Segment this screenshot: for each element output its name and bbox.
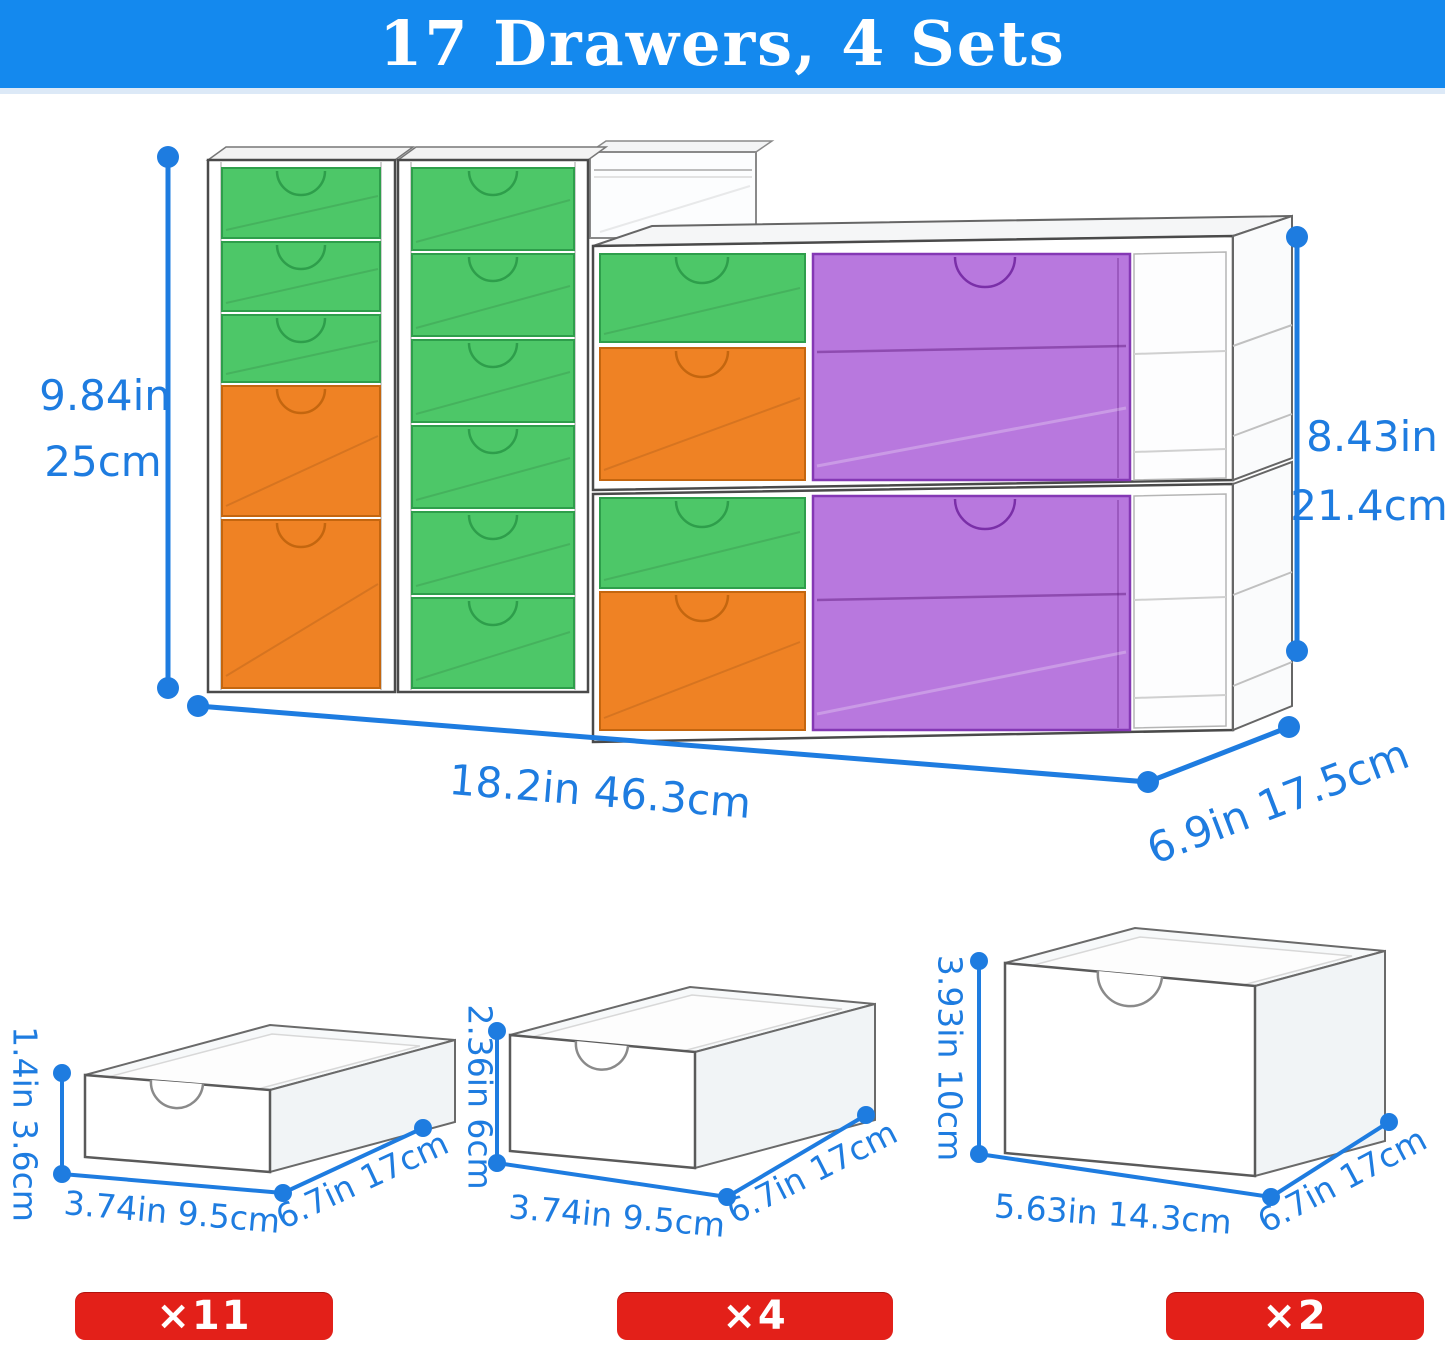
right-height-label-cm: 21.4cm [1290,485,1445,527]
green-drawer [412,598,574,688]
green-drawer [600,254,805,342]
main-height-label-in: 9.84in [39,375,171,417]
green-drawer [222,168,380,238]
small-drawer-count-badge: ×11 [75,1292,333,1340]
clear-box-front [1134,494,1226,728]
large-drawer-count-badge: ×2 [1166,1292,1424,1340]
green-drawer [222,315,380,382]
medium-drawer-height-label: 2.36in 6cm [464,1004,497,1189]
product-diagram: 17 Drawers, 4 Sets 9.84in 25cm 8.43in 21… [0,0,1445,1347]
orange-drawer [600,348,805,480]
large-drawer-height-label: 3.93in 10cm [934,955,967,1161]
purple-drawer [813,254,1130,480]
header-banner: 17 Drawers, 4 Sets [0,0,1445,94]
right-height-label-in: 8.43in [1306,416,1438,458]
product-illustration [0,0,1445,1347]
small-drawer-height-label: 1.4in 3.6cm [9,1026,42,1222]
tower-2 [398,147,606,692]
purple-drawer [813,496,1130,730]
green-drawer [412,340,574,422]
green-drawer [412,254,574,336]
green-drawer [412,512,574,594]
green-drawer [600,498,805,588]
green-drawer [412,168,574,250]
right-unit [593,216,1292,742]
clear-drawer-top [590,141,772,238]
page-title: 17 Drawers, 4 Sets [379,13,1066,75]
medium-drawer-count-badge: ×4 [617,1292,893,1340]
orange-drawer [222,520,380,688]
green-drawer [222,242,380,311]
tower-1 [208,147,413,692]
main-height-label-cm: 25cm [44,441,161,483]
orange-drawer [600,592,805,730]
orange-drawer [222,386,380,516]
green-drawer [412,426,574,508]
clear-box-front [1134,252,1226,480]
